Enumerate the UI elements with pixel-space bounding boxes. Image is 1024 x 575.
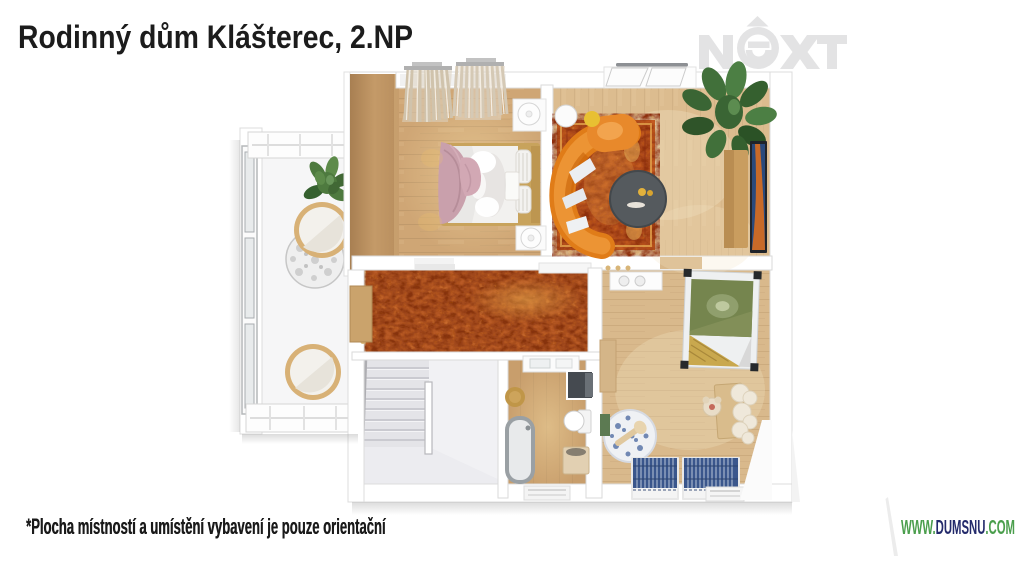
svg-text:WWW.DUMSNU.COM: WWW.DUMSNU.COM (901, 517, 1015, 539)
